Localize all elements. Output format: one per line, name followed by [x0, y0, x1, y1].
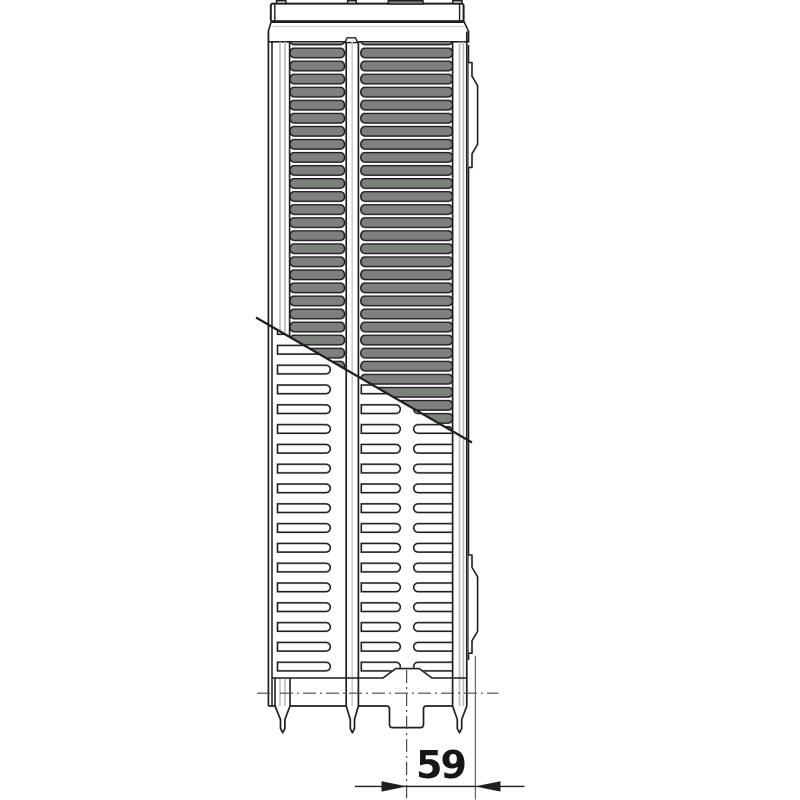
- bottom-profile: [268, 669, 466, 733]
- top-band: [268, 22, 468, 42]
- top-vent-tab: [388, 1, 423, 4]
- pipe-notch: [358, 706, 452, 728]
- foot-center: [346, 706, 358, 733]
- top-cap: [268, 1, 468, 43]
- bracket-upper: [469, 63, 478, 168]
- foot-left: [275, 706, 290, 733]
- dimension-label: 59: [416, 743, 465, 787]
- bracket-lower: [469, 555, 478, 653]
- top-grille-bar: [271, 4, 464, 22]
- dimension-arrow-right: [475, 781, 500, 791]
- foot-right: [453, 706, 467, 733]
- radiator-drawing-page: 59: [0, 0, 800, 800]
- radiator-side-view-drawing: 59: [0, 0, 800, 800]
- dimension-arrow-left: [382, 781, 407, 791]
